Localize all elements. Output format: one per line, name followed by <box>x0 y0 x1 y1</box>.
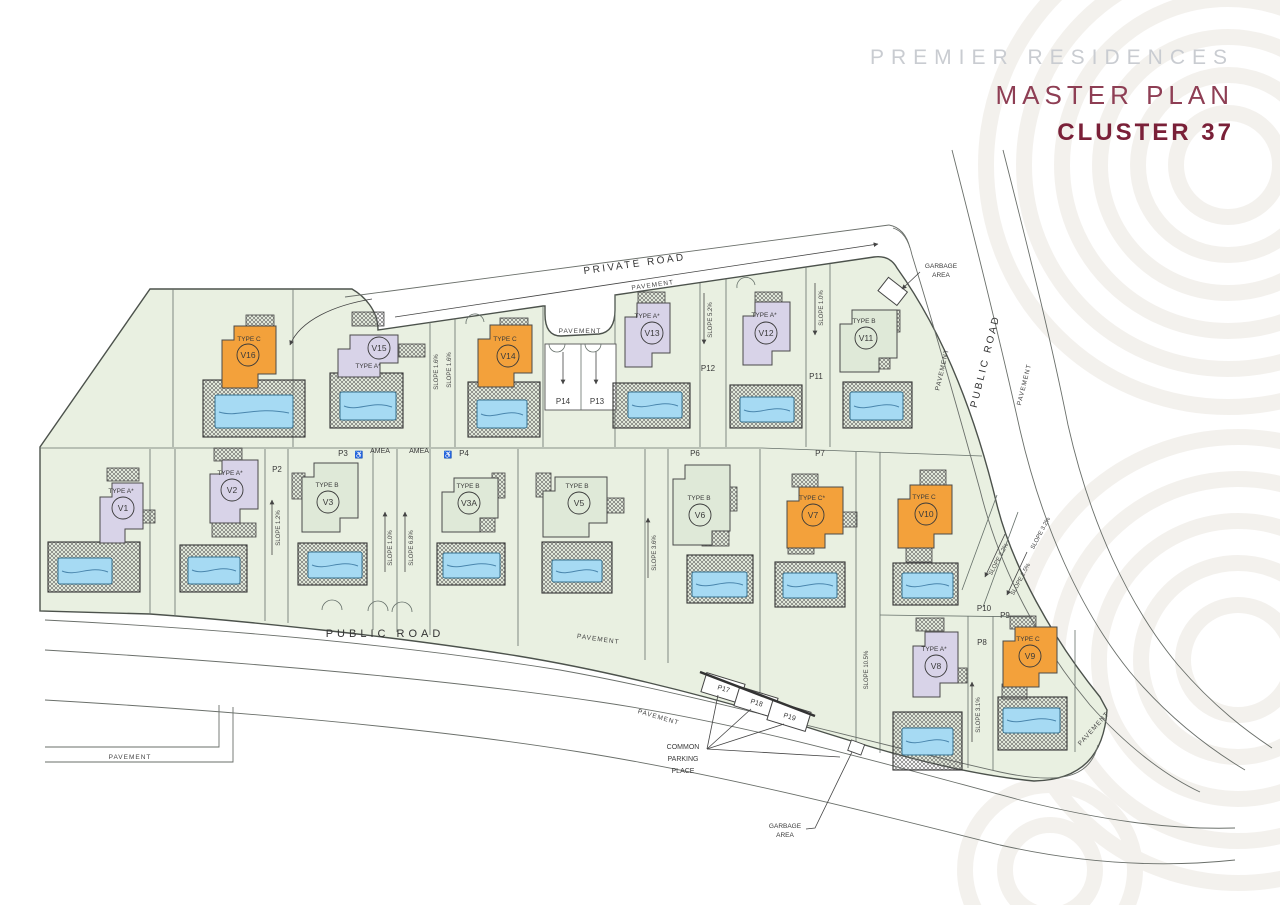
villa-type-label: TYPE A* <box>108 488 134 495</box>
slope-label: SLOPE 1.2% <box>276 510 282 546</box>
common-parking-label: PARKING <box>668 756 699 763</box>
parking-label-p6: P6 <box>690 449 700 458</box>
hatch-detail <box>107 468 139 481</box>
cluster-subtitle: CLUSTER 37 <box>870 119 1234 147</box>
parking-label-p12: P12 <box>701 364 716 373</box>
villa-type-label: TYPE C* <box>799 495 825 502</box>
hatch-detail <box>214 448 242 461</box>
hatch-detail <box>212 523 256 537</box>
slope-label: SLOPE 1.0% <box>819 290 825 326</box>
villa-id-label: V5 <box>574 498 585 508</box>
wheelchair-icon: ♿ <box>444 450 453 459</box>
garbage-area-label: GARBAGE <box>769 823 802 830</box>
villa-type-label: TYPE C <box>912 494 936 501</box>
villa-type-label: TYPE C <box>1016 636 1040 643</box>
slope-label: SLOPE 1.6% <box>434 354 440 390</box>
slope-label: SLOPE 1.6% <box>447 352 453 388</box>
hatch-detail <box>399 344 425 357</box>
pool <box>902 728 953 755</box>
pool <box>902 573 953 598</box>
hatch-detail <box>792 474 818 487</box>
parking-bay-p13-p14: P14 P13 <box>545 344 616 410</box>
villa-id-label: V2 <box>227 485 238 495</box>
villa-id-label: V16 <box>240 350 255 360</box>
pool <box>188 557 240 584</box>
private-road-label: PRIVATE ROAD <box>583 252 687 277</box>
pavement-label: PAVEMENT <box>637 708 680 727</box>
parking-label-p10: P10 <box>977 604 992 613</box>
amea-label: AMEA <box>409 448 429 455</box>
villa-id-label: V11 <box>859 333 874 343</box>
villa-type-label: TYPE A* <box>634 313 660 320</box>
garbage-area-bottom: GARBAGE AREA <box>769 740 865 839</box>
parking-label-p9: P9 <box>1000 611 1010 620</box>
garbage-area-label: AREA <box>932 272 950 279</box>
garbage-area-label: GARBAGE <box>925 263 958 270</box>
slope-label: SLOPE 1.0% <box>388 530 394 566</box>
villa-type-label: TYPE A* <box>217 470 243 477</box>
villa-id-label: V15 <box>371 343 386 353</box>
villa-id-label: V3 <box>323 497 334 507</box>
villa-type-label: TYPE A* <box>921 646 947 653</box>
parking-label-p14: P14 <box>556 397 571 406</box>
villa-type-label: TYPE A* <box>355 363 381 370</box>
villa-id-label: V1 <box>118 503 129 513</box>
villa-id-label: V12 <box>758 328 773 338</box>
slope-label: SLOPE 5.2% <box>708 302 714 338</box>
pool <box>443 553 500 578</box>
slope-label: SLOPE 6.8% <box>409 530 415 566</box>
hatch-detail <box>920 470 946 485</box>
common-parking-label: PLACE <box>672 768 695 775</box>
pavement-label: PAVEMENT <box>109 754 152 761</box>
villa-id-label: V13 <box>644 328 659 338</box>
brand-title: PREMIER RESIDENCES <box>870 46 1234 70</box>
villa-type-label: TYPE C <box>237 336 261 343</box>
parking-label-p7: P7 <box>815 449 825 458</box>
pool <box>783 573 837 598</box>
villa-type-label: TYPE B <box>687 495 710 502</box>
villa-id-label: V6 <box>695 510 706 520</box>
title-block: PREMIER RESIDENCES MASTER PLAN CLUSTER 3… <box>870 46 1234 147</box>
villa-type-label: TYPE B <box>456 483 479 490</box>
hatch-detail <box>843 512 857 527</box>
villa-id-label: V3A <box>461 498 477 508</box>
villa-id-label: V8 <box>931 661 942 671</box>
villa-id-label: V14 <box>500 351 515 361</box>
villa-id-label: V10 <box>918 509 933 519</box>
pool <box>1003 708 1060 733</box>
common-parking-label: COMMON <box>667 744 700 751</box>
pavement-label: PAVEMENT <box>559 328 602 335</box>
slope-label: SLOPE 3.6% <box>652 535 658 571</box>
hatch-detail <box>352 312 384 326</box>
slope-label: SLOPE 10.5% <box>864 650 870 689</box>
villa-type-label: TYPE A* <box>751 312 777 319</box>
parking-label-p8: P8 <box>977 638 987 647</box>
villa-type-label: TYPE B <box>315 482 338 489</box>
garbage-area-label: AREA <box>776 832 794 839</box>
public-road-label: PUBLIC ROAD <box>969 314 1003 409</box>
amea-label: AMEA <box>370 448 390 455</box>
hatch-detail <box>916 618 944 631</box>
parking-label-p3: P3 <box>338 449 348 458</box>
pavement-label: PAVEMENT <box>1016 363 1033 406</box>
villa-type-label: TYPE B <box>565 483 588 490</box>
pool <box>692 572 747 597</box>
public-road-label: PUBLIC ROAD <box>326 628 445 640</box>
slope-label: SLOPE 3.1% <box>976 697 982 733</box>
wheelchair-icon: ♿ <box>355 450 364 459</box>
parking-label-p2: P2 <box>272 465 282 474</box>
villa-type-label: TYPE B <box>852 318 875 325</box>
villa-type-label: TYPE C <box>493 336 517 343</box>
page-title: MASTER PLAN <box>870 80 1234 111</box>
villa-id-label: V9 <box>1025 651 1036 661</box>
parking-label-p4: P4 <box>459 449 469 458</box>
hatch-detail <box>906 547 932 562</box>
parking-label-p11: P11 <box>809 372 823 381</box>
villa-id-label: V7 <box>808 510 819 520</box>
parking-label-p13: P13 <box>590 397 605 406</box>
master-plan-canvas: PREMIER RESIDENCES MASTER PLAN CLUSTER 3… <box>0 0 1280 905</box>
